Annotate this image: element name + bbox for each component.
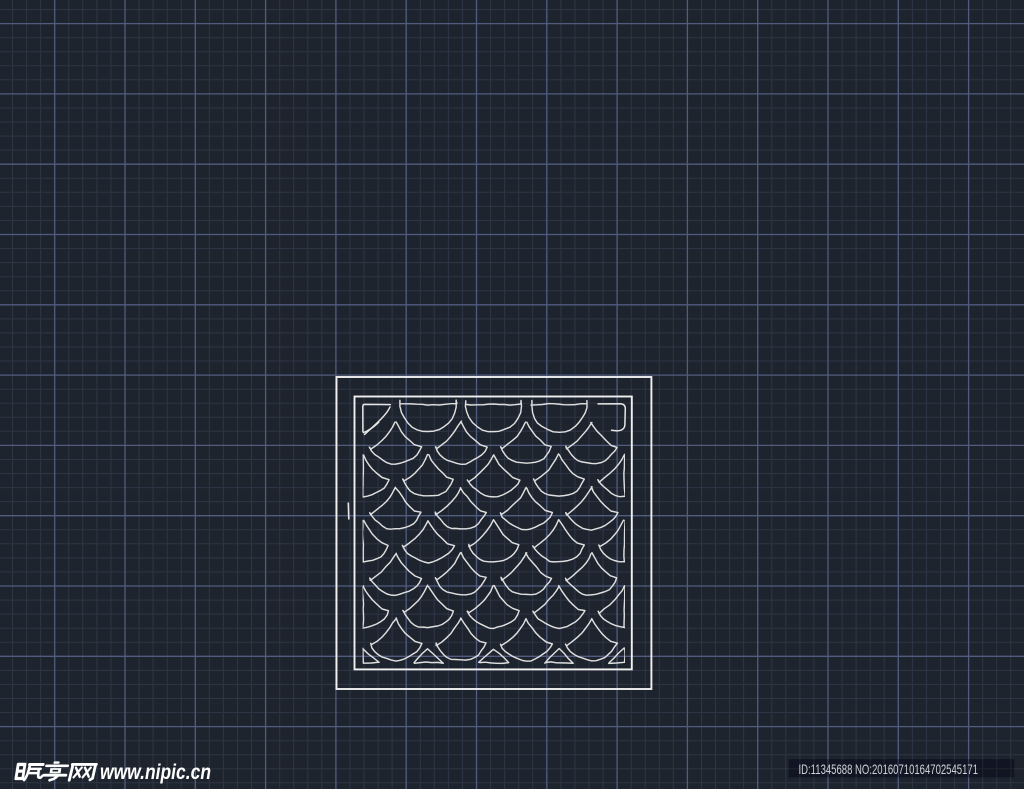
svg-text:www.nipic.cn: www.nipic.cn bbox=[100, 760, 211, 784]
svg-text:ID:11345688 NO:201607101647025: ID:11345688 NO:20160710164702545171 bbox=[799, 761, 979, 777]
